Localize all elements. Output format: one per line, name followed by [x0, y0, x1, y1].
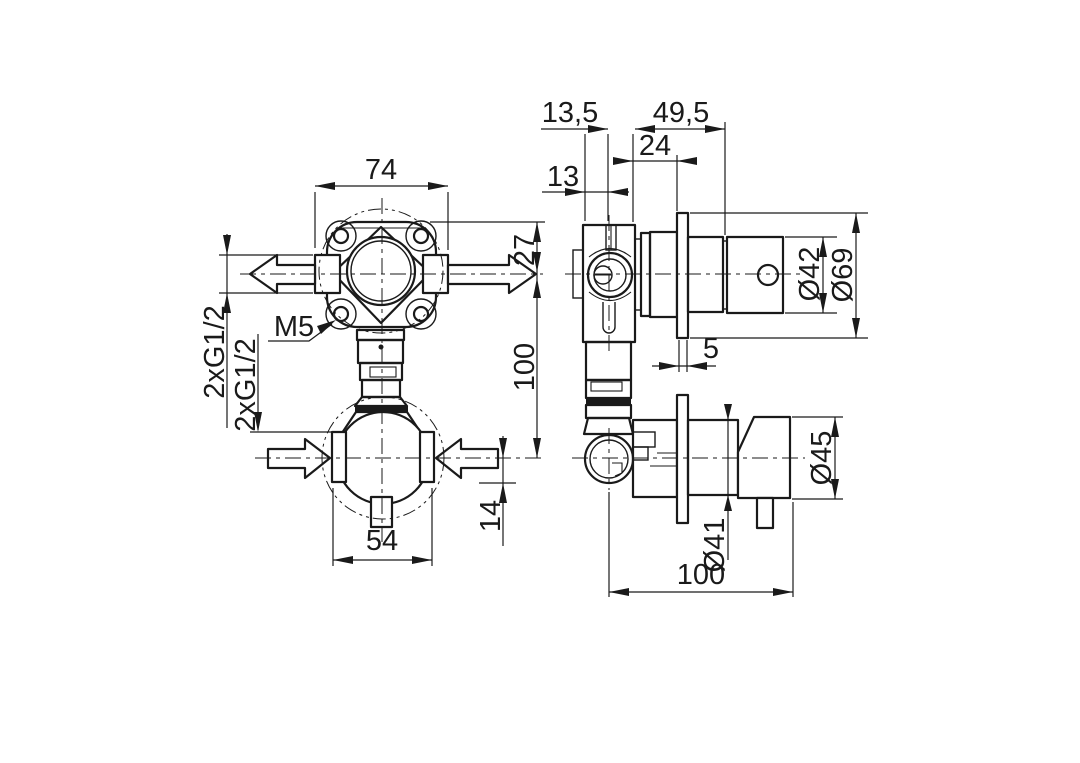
- dim-label-49-5: 49,5: [653, 97, 709, 129]
- dim-label-d69: Ø69: [827, 248, 859, 303]
- dim-label-27: 27: [509, 234, 541, 266]
- dim-label-13: 13: [547, 161, 579, 193]
- wall-plate: [677, 213, 688, 338]
- dim-label-14: 14: [475, 500, 507, 532]
- technical-drawing-shower-mixer: 74 27 100 14 54: [0, 0, 1080, 763]
- dim-label-inlet-thread: 2xG1/2: [230, 338, 262, 432]
- dim-label-74: 74: [365, 154, 397, 186]
- drawing-canvas: 74 27 100 14 54: [0, 0, 1080, 763]
- dim-label-outlet-thread: 2xG1/2: [199, 305, 231, 399]
- dim-label-54: 54: [366, 525, 398, 557]
- neck-pin-hole: [379, 345, 384, 350]
- inlet-port-right: [420, 432, 434, 482]
- dim-label-24: 24: [639, 130, 671, 162]
- dim-label-d42: Ø42: [794, 247, 826, 302]
- dim-label-100: 100: [509, 343, 541, 391]
- rosette-plate: [677, 395, 688, 523]
- dim-label-m5: M5: [274, 311, 314, 343]
- inlet-port-left: [332, 432, 346, 482]
- dim-label-d45: Ø45: [806, 431, 838, 486]
- cartridge-bore-outer: [347, 237, 415, 305]
- handle-stub: [757, 498, 773, 528]
- dim-label-13-5: 13,5: [542, 97, 598, 129]
- dim-13-5: 13,5: [541, 97, 608, 133]
- dim-label-100-side: 100: [677, 559, 725, 591]
